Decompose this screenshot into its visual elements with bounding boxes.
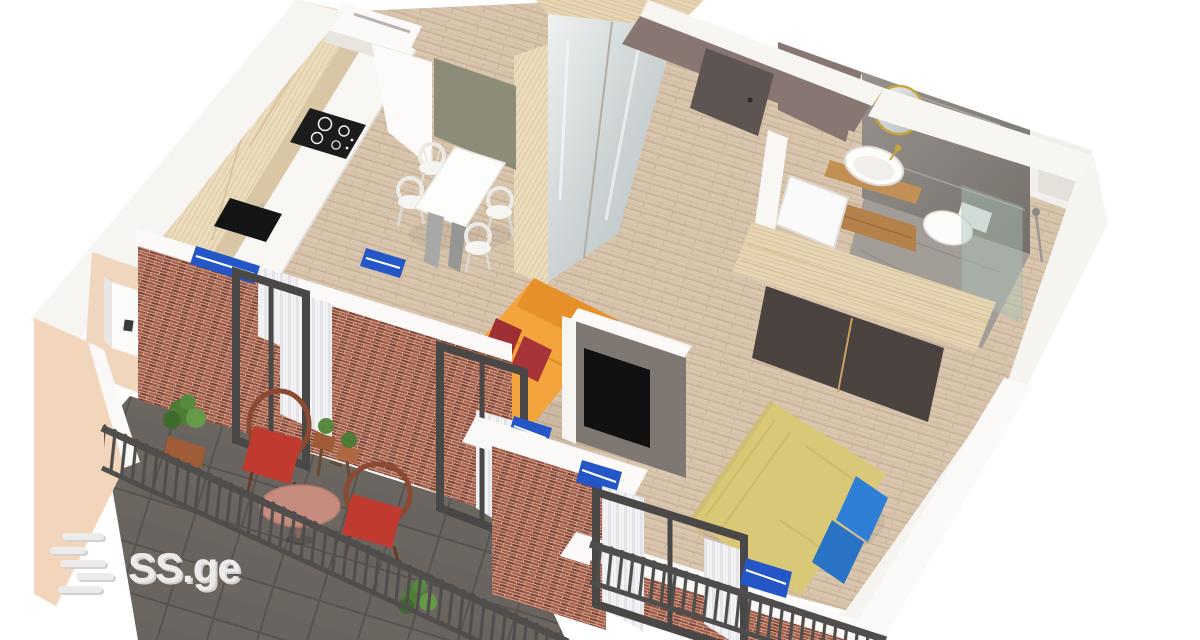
tv-wall-edge <box>562 316 576 444</box>
logo-text: SS.ge <box>128 544 240 591</box>
boiler-side <box>104 276 112 348</box>
shower-head <box>1032 208 1040 216</box>
hall-wardrobe-side <box>514 44 548 286</box>
sink-faucet <box>260 204 264 208</box>
door-handle <box>748 98 753 103</box>
floor-plan-svg: SS.ge SS.ge <box>0 0 1200 640</box>
floor-plan-render: SS.ge SS.ge <box>0 0 1200 640</box>
boiler-display <box>123 319 133 331</box>
